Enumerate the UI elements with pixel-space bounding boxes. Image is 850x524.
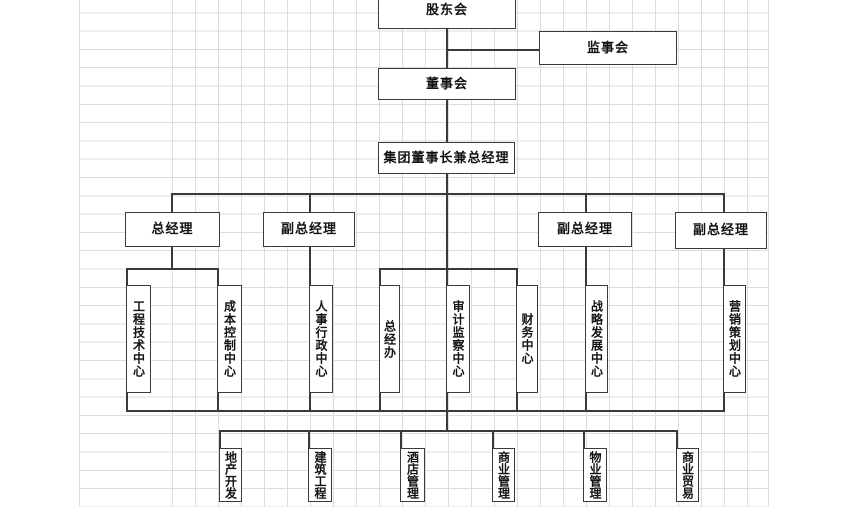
node-audit-supervision-center[interactable]: 审计监察中心 [446, 285, 470, 393]
connector-line [309, 193, 311, 213]
node-label: 工程技术中心 [133, 300, 145, 378]
connector-line [126, 410, 725, 412]
connector-line [219, 430, 678, 432]
connector-line [171, 247, 173, 270]
gridline-left-edge [79, 0, 80, 507]
connector-line [308, 430, 310, 450]
node-label: 地产开发 [225, 451, 237, 499]
node-label: 副总经理 [281, 222, 337, 237]
node-label: 战略发展中心 [591, 300, 603, 378]
node-real-estate-dev[interactable]: 地产开发 [219, 448, 242, 502]
node-construction-eng[interactable]: 建筑工程 [308, 448, 332, 502]
node-engineering-tech-center[interactable]: 工程技术中心 [126, 285, 151, 393]
node-general-manager[interactable]: 总经理 [125, 212, 220, 247]
connector-line [446, 100, 448, 142]
node-label: 副总经理 [693, 223, 749, 238]
node-label: 建筑工程 [314, 451, 326, 499]
node-shareholders-meeting[interactable]: 股东会 [378, 0, 516, 29]
connector-line [676, 430, 678, 450]
node-label: 物业管理 [589, 451, 601, 499]
node-cost-control-center[interactable]: 成本控制中心 [217, 285, 242, 393]
node-label: 财务中心 [521, 313, 533, 365]
node-label: 成本控制中心 [224, 300, 236, 378]
node-label: 副总经理 [557, 222, 613, 237]
node-deputy-gm-1[interactable]: 副总经理 [263, 212, 355, 247]
connector-line [446, 410, 448, 432]
node-label: 监事会 [587, 41, 629, 56]
node-label: 商业管理 [498, 451, 510, 499]
node-supervisory-board[interactable]: 监事会 [539, 31, 677, 65]
node-label: 股东会 [426, 3, 468, 18]
node-label: 人事行政中心 [315, 300, 327, 378]
node-label: 集团董事长兼总经理 [383, 151, 509, 166]
node-gm-office[interactable]: 总经办 [379, 285, 400, 393]
connector-line [219, 430, 221, 450]
connector-line [379, 268, 518, 270]
node-hr-admin-center[interactable]: 人事行政中心 [309, 285, 333, 393]
node-label: 审计监察中心 [452, 300, 464, 378]
node-deputy-gm-3[interactable]: 副总经理 [675, 212, 767, 249]
connector-line [583, 430, 585, 450]
connector-line [723, 193, 725, 213]
connector-line [400, 430, 402, 450]
node-label: 酒店管理 [407, 451, 419, 499]
node-chairman-and-gm[interactable]: 集团董事长兼总经理 [378, 142, 515, 174]
connector-line [492, 430, 494, 450]
node-finance-center[interactable]: 财务中心 [516, 285, 538, 393]
node-hotel-management[interactable]: 酒店管理 [400, 448, 425, 502]
connector-line [446, 49, 541, 51]
node-label: 总经理 [151, 222, 193, 237]
connector-line [585, 193, 587, 213]
connector-line [171, 193, 173, 213]
node-label: 商业贸易 [682, 451, 694, 499]
connector-line [126, 268, 219, 270]
node-strategic-dev-center[interactable]: 战略发展中心 [585, 285, 608, 393]
connector-line [171, 193, 725, 195]
node-marketing-planning-center[interactable]: 营销策划中心 [723, 285, 746, 393]
node-label: 总经办 [384, 320, 396, 359]
gridline-right-edge [768, 0, 769, 507]
node-label: 营销策划中心 [729, 300, 741, 378]
connector-line [446, 28, 448, 68]
org-chart-canvas: 股东会 监事会 董事会 集团董事长兼总经理 总经理 副总经理 副总经理 副总经理… [0, 0, 850, 524]
node-board-of-directors[interactable]: 董事会 [378, 68, 516, 100]
node-label: 董事会 [426, 77, 468, 92]
node-property-management[interactable]: 物业管理 [583, 448, 607, 502]
node-commercial-trade[interactable]: 商业贸易 [676, 448, 699, 502]
node-deputy-gm-2[interactable]: 副总经理 [538, 212, 632, 247]
node-commercial-management[interactable]: 商业管理 [492, 448, 515, 502]
